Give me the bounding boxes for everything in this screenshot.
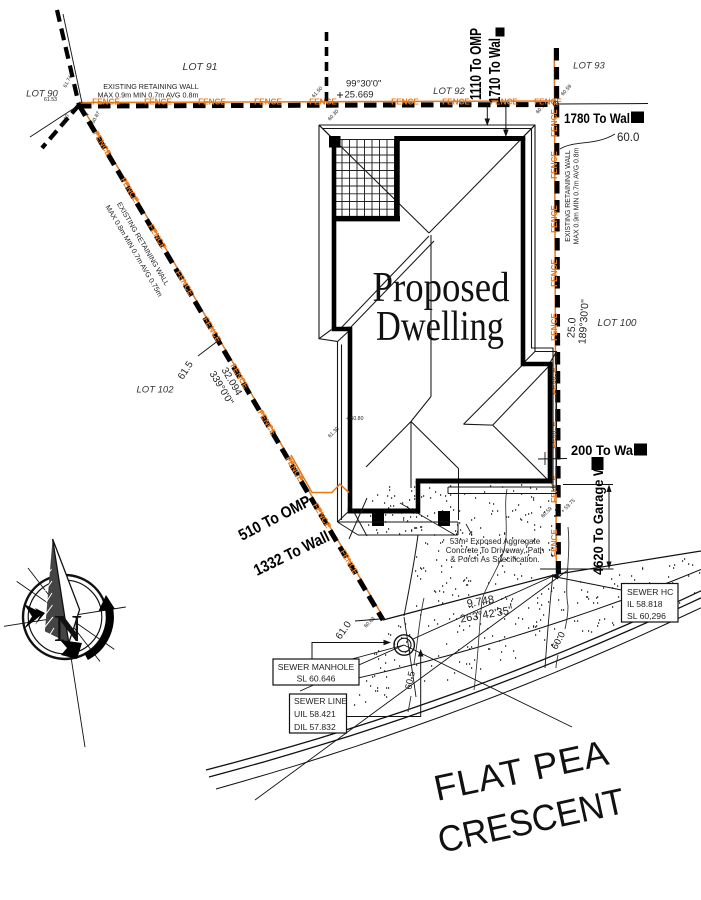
svg-text:LOT 91: LOT 91	[182, 61, 217, 73]
svg-text:N: N	[54, 608, 81, 650]
svg-text:SEWER HC: SEWER HC	[627, 587, 673, 597]
svg-text:4620 To Garage Wa: 4620 To Garage Wa	[591, 457, 606, 575]
svg-text:1710 To Wal: 1710 To Wal	[487, 38, 504, 103]
svg-text:61.53: 61.53	[44, 97, 57, 103]
svg-text:MAX 0.9m MIN 0.7m AVG 0.8m: MAX 0.9m MIN 0.7m AVG 0.8m	[574, 147, 581, 244]
svg-text:FENCE: FENCE	[254, 98, 282, 107]
svg-text:FENCE: FENCE	[550, 529, 559, 557]
svg-text:SL 60,296: SL 60,296	[627, 611, 666, 621]
svg-text:+: +	[86, 112, 89, 118]
svg-text:Dwelling: Dwelling	[376, 304, 504, 350]
svg-text:SEWER MANHOLE: SEWER MANHOLE	[278, 662, 355, 672]
svg-text:EXISTING RETAINING WALL: EXISTING RETAINING WALL	[565, 150, 572, 242]
svg-text:1110 To OMP: 1110 To OMP	[468, 28, 485, 100]
svg-text:FENCE: FENCE	[391, 98, 419, 107]
svg-text:FENCE: FENCE	[309, 98, 337, 107]
svg-text:FENCE: FENCE	[198, 98, 226, 107]
svg-text:FENCE: FENCE	[550, 205, 559, 233]
svg-text:FENCE: FENCE	[550, 109, 559, 137]
svg-text:53m² Exposed Aggregate: 53m² Exposed Aggregate	[450, 537, 541, 546]
svg-text:LOT 92: LOT 92	[433, 86, 465, 97]
svg-text:200 To Wa: 200 To Wa	[571, 443, 633, 458]
svg-text:MAX 0.9m MIN 0.7m AVG 0.8m: MAX 0.9m MIN 0.7m AVG 0.8m	[98, 91, 199, 100]
svg-text:60.0: 60.0	[617, 132, 639, 144]
svg-text:LOT 102: LOT 102	[137, 385, 175, 396]
svg-text:1780 To Wal: 1780 To Wal	[564, 110, 630, 126]
svg-text:FENCE: FENCE	[550, 313, 559, 341]
svg-text:FENCE: FENCE	[550, 259, 559, 287]
svg-text:99°30'0": 99°30'0"	[346, 79, 381, 90]
svg-text:SL 60.646: SL 60.646	[297, 674, 336, 684]
svg-text:FENCE: FENCE	[550, 151, 559, 179]
svg-text:FENCE: FENCE	[442, 98, 470, 107]
svg-text:DIL 57.832: DIL 57.832	[294, 722, 336, 732]
svg-text:Concrete To Driveway, Path: Concrete To Driveway, Path	[446, 546, 544, 555]
svg-text:SEWER LINE: SEWER LINE	[294, 696, 347, 706]
svg-text:& Porch As Specification.: & Porch As Specification.	[450, 555, 539, 564]
svg-text:LOT 93: LOT 93	[573, 61, 605, 72]
svg-text:IL 58.818: IL 58.818	[627, 599, 663, 609]
svg-text:25.669: 25.669	[345, 90, 374, 101]
svg-text:LOT 100: LOT 100	[598, 318, 637, 329]
svg-text:+ 60.80: + 60.80	[346, 416, 364, 422]
svg-text:UIL 58.421: UIL 58.421	[294, 709, 336, 719]
